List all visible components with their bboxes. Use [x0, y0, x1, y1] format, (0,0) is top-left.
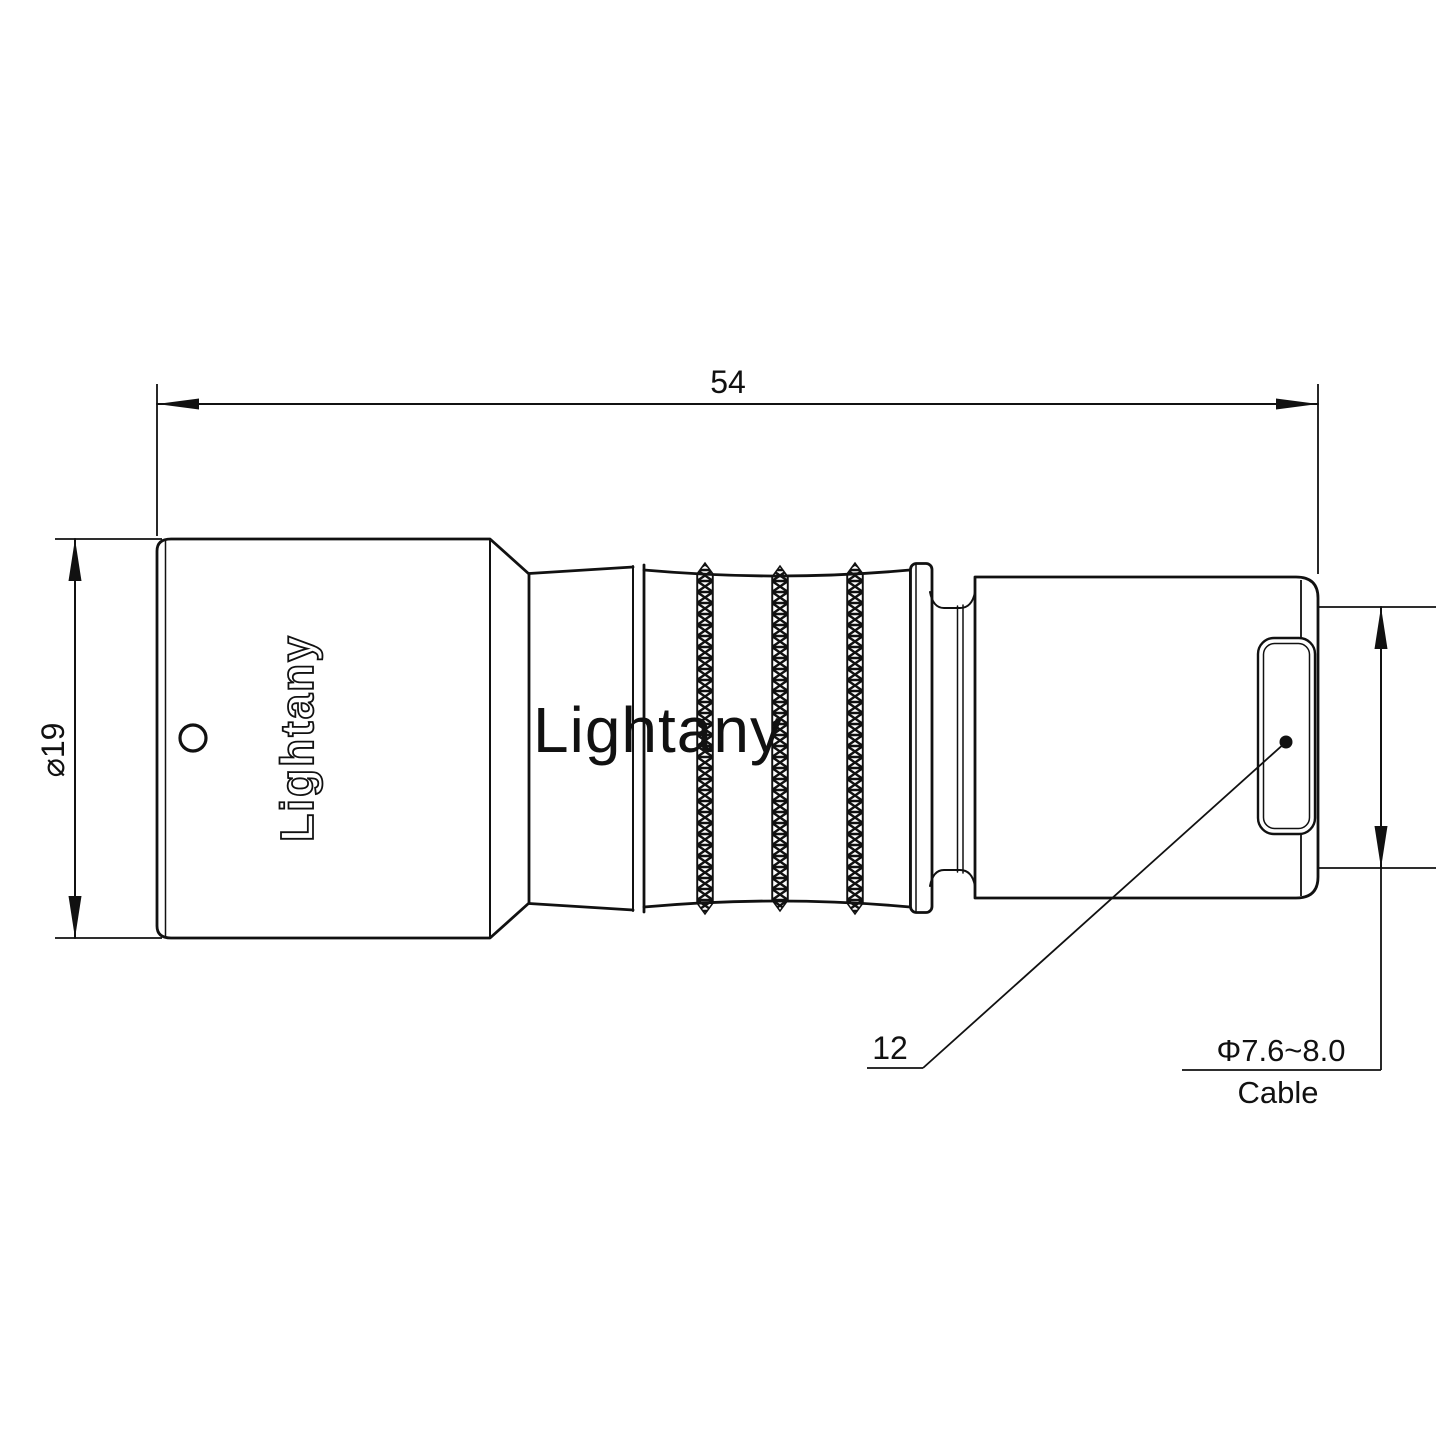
leader-dot: [1280, 736, 1293, 749]
arrowhead-up: [69, 539, 82, 581]
drawing-canvas: Lightany: [0, 0, 1440, 1440]
cable-word-label: Cable: [1238, 1075, 1319, 1110]
knurl-band: [772, 566, 788, 911]
front-shell-outline: [157, 539, 529, 938]
cable-diameter-label: Φ7.6~8.0: [1216, 1033, 1345, 1068]
release-hole: [180, 725, 206, 751]
leader-line: [923, 742, 1286, 1068]
arrowhead-down: [69, 896, 82, 938]
diameter-dimension-label: ⌀19: [35, 723, 71, 778]
length-dimension-label: 54: [710, 364, 746, 400]
arrowhead-up: [1375, 607, 1388, 649]
neck-top-edge: [930, 592, 975, 608]
rear-reference-label: 12: [872, 1030, 908, 1066]
arrowhead-down: [1375, 826, 1388, 868]
connector-technical-drawing: Lightany: [0, 0, 1440, 1440]
arrowhead-left: [157, 399, 199, 410]
mid-section-bottom-edge: [529, 904, 633, 911]
neck-bottom-edge: [930, 870, 975, 886]
end-flange: [911, 564, 933, 913]
brand-engraving: Lightany: [271, 634, 323, 842]
arrowhead-right: [1276, 399, 1318, 410]
mid-section-top-edge: [529, 567, 633, 574]
watermark-text: Lightany: [533, 694, 783, 766]
knurl-band: [847, 563, 863, 914]
knurl-band: [697, 563, 713, 914]
